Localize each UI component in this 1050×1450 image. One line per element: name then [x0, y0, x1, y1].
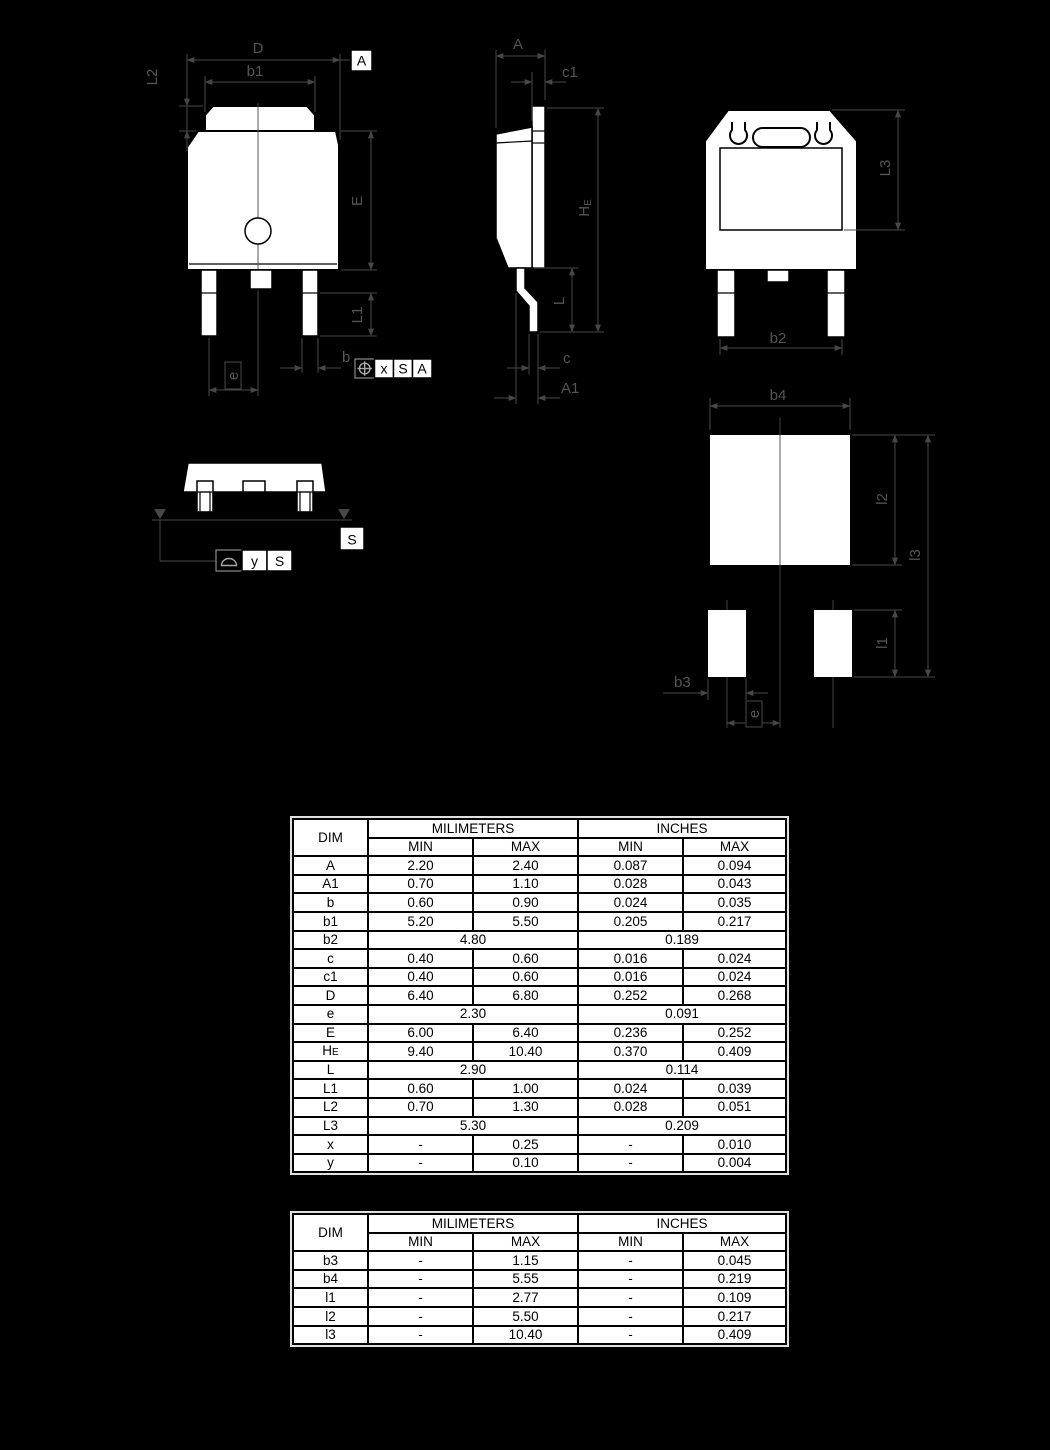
- table-cell: 5.50: [473, 912, 578, 931]
- col-header-max: MAX: [473, 1233, 578, 1252]
- lead-left-back: [717, 270, 735, 337]
- dim-cell: c1: [293, 968, 368, 987]
- table-row: b3-1.15-0.045: [293, 1251, 786, 1270]
- table-cell: 0.370: [578, 1042, 683, 1061]
- table-cell: 0.10: [473, 1154, 578, 1173]
- col-header-min: MIN: [578, 1233, 683, 1252]
- table-cell: 0.90: [473, 893, 578, 912]
- dim-cell: L2: [293, 1098, 368, 1117]
- dimension-table-package: DIMMILIMETERSINCHESMINMAXMINMAXA2.202.40…: [292, 818, 787, 1173]
- table-row: D6.406.800.2520.268: [293, 986, 786, 1005]
- dim-label-L1: L1: [349, 307, 366, 324]
- table-cell: 0.217: [683, 912, 786, 931]
- table-row: l2-5.50-0.217: [293, 1307, 786, 1326]
- table-cell: 0.087: [578, 856, 683, 875]
- table-cell: -: [368, 1307, 473, 1326]
- dim-cell: E: [293, 1024, 368, 1043]
- dim-cell: e: [293, 1005, 368, 1024]
- dim-cell: b4: [293, 1270, 368, 1289]
- table-row: b4-5.55-0.219: [293, 1270, 786, 1289]
- table-cell: 0.094: [683, 856, 786, 875]
- datum-a-label: A: [357, 53, 367, 69]
- table-cell: 0.268: [683, 986, 786, 1005]
- table-row: b0.600.900.0240.035: [293, 893, 786, 912]
- table-row: b24.800.189: [293, 931, 786, 950]
- table-cell: -: [578, 1270, 683, 1289]
- col-header-dim: DIM: [293, 1214, 368, 1251]
- package-outline-drawing: D A b1 L2 E L1 b e: [0, 0, 1050, 780]
- table-cell: 0.219: [683, 1270, 786, 1289]
- table-cell: 0.40: [368, 949, 473, 968]
- table-cell: -: [368, 1251, 473, 1270]
- table-cell: 0.114: [578, 1061, 786, 1080]
- table-row: A10.701.100.0280.043: [293, 875, 786, 894]
- table-cell: 0.016: [578, 968, 683, 987]
- table-cell: 0.60: [368, 1079, 473, 1098]
- dim-label-fp-l2: l2: [874, 493, 891, 505]
- table-cell: 0.024: [683, 968, 786, 987]
- table-cell: 0.028: [578, 875, 683, 894]
- table-cell: 0.024: [578, 893, 683, 912]
- table-cell: -: [368, 1326, 473, 1345]
- dim-cell: y: [293, 1154, 368, 1173]
- table-cell: 0.016: [578, 949, 683, 968]
- dim-label-b: b: [342, 349, 350, 366]
- table-row: y-0.10-0.004: [293, 1154, 786, 1173]
- table-cell: 0.024: [683, 949, 786, 968]
- dim-label-e: e: [225, 372, 242, 380]
- dim-label-A1: A1: [561, 380, 579, 397]
- position-tolerance-frame: x S A: [355, 359, 432, 378]
- pin1-mark: [245, 218, 271, 244]
- dim-label-b3: b3: [674, 674, 691, 691]
- table-row: L35.300.209: [293, 1117, 786, 1136]
- fcf-position-x: x: [381, 361, 388, 377]
- dim-cell: A1: [293, 875, 368, 894]
- notch-right: [815, 122, 832, 144]
- table-cell: 0.209: [578, 1117, 786, 1136]
- seating-plane-tolerance-frame: y S: [216, 550, 292, 571]
- table-cell: 10.40: [473, 1042, 578, 1061]
- dim-cell: b1: [293, 912, 368, 931]
- table-cell: 0.004: [683, 1154, 786, 1173]
- datasheet-page: { "colors": { "page_bg": "#000000", "lin…: [0, 0, 1050, 1450]
- table-row: A2.202.400.0870.094: [293, 856, 786, 875]
- col-header-inches: INCHES: [578, 1214, 786, 1233]
- table-row: x-0.25-0.010: [293, 1135, 786, 1154]
- table-row: c10.400.600.0160.024: [293, 968, 786, 987]
- table-cell: 0.409: [683, 1042, 786, 1061]
- dim-label-fp-e: e: [746, 710, 763, 718]
- table-cell: 0.109: [683, 1288, 786, 1307]
- table-cell: 9.40: [368, 1042, 473, 1061]
- table-cell: 0.028: [578, 1098, 683, 1117]
- dim-label-fp-l3: l3: [907, 549, 924, 561]
- dim-cell: l2: [293, 1307, 368, 1326]
- table-cell: -: [368, 1154, 473, 1173]
- dim-label-E: E: [349, 196, 366, 206]
- table-cell: 1.10: [473, 875, 578, 894]
- fcf-seating-s: S: [275, 553, 284, 569]
- table-cell: 4.80: [368, 931, 578, 950]
- table-cell: 0.70: [368, 875, 473, 894]
- dim-cell: b3: [293, 1251, 368, 1270]
- table-row: L20.701.300.0280.051: [293, 1098, 786, 1117]
- table-cell: 2.30: [368, 1005, 578, 1024]
- table-cell: -: [368, 1288, 473, 1307]
- table-cell: -: [578, 1154, 683, 1173]
- lead-left: [201, 270, 217, 336]
- dim-label-c: c: [563, 350, 571, 367]
- table-cell: -: [368, 1135, 473, 1154]
- table-cell: -: [578, 1251, 683, 1270]
- col-header-milimeters: MILIMETERS: [368, 1214, 578, 1233]
- col-header-min: MIN: [368, 838, 473, 857]
- stub-bottom: [243, 481, 265, 492]
- table-row: e2.300.091: [293, 1005, 786, 1024]
- col-header-min: MIN: [368, 1233, 473, 1252]
- dim-label-D: D: [253, 40, 264, 57]
- lead-pad-left: [708, 610, 746, 677]
- col-header-dim: DIM: [293, 819, 368, 856]
- table-cell: 0.252: [578, 986, 683, 1005]
- table-row: L10.601.000.0240.039: [293, 1079, 786, 1098]
- bottom-view: y S S: [152, 463, 364, 571]
- dim-label-b2: b2: [770, 330, 787, 347]
- table-cell: 0.091: [578, 1005, 786, 1024]
- col-header-inches: INCHES: [578, 819, 786, 838]
- dim-label-L: L: [551, 297, 568, 305]
- footprint-view: b4 l2 l3 l1 b3 e: [663, 387, 935, 728]
- table-cell: 6.80: [473, 986, 578, 1005]
- center-stub: [250, 270, 272, 289]
- table-cell: 2.40: [473, 856, 578, 875]
- tab-slot: [753, 128, 810, 147]
- dim-cell: A: [293, 856, 368, 875]
- table-row: L2.900.114: [293, 1061, 786, 1080]
- dimension-table-package-wrap: DIMMILIMETERSINCHESMINMAXMINMAXA2.202.40…: [290, 816, 789, 1175]
- lead-right-back: [827, 270, 845, 337]
- table-row: l1-2.77-0.109: [293, 1288, 786, 1307]
- fcf-position-s: S: [398, 361, 407, 377]
- dim-label-L3: L3: [877, 160, 894, 177]
- table-cell: 1.15: [473, 1251, 578, 1270]
- dimension-table-footprint-wrap: DIMMILIMETERSINCHESMINMAXMINMAXb3-1.15-0…: [290, 1211, 789, 1347]
- dim-cell: l3: [293, 1326, 368, 1345]
- dim-label-HE: HE: [576, 199, 594, 217]
- lead-right-bottom: [297, 481, 313, 512]
- table-row: b15.205.500.2050.217: [293, 912, 786, 931]
- table-cell: 0.043: [683, 875, 786, 894]
- dim-cell: x: [293, 1135, 368, 1154]
- dim-cell: l1: [293, 1288, 368, 1307]
- table-cell: 0.189: [578, 931, 786, 950]
- table-row: E6.006.400.2360.252: [293, 1024, 786, 1043]
- lead-pad-right: [814, 610, 852, 677]
- table-cell: 2.20: [368, 856, 473, 875]
- table-cell: -: [578, 1135, 683, 1154]
- center-stub-back: [767, 270, 789, 282]
- col-header-max: MAX: [683, 838, 786, 857]
- table-cell: 2.77: [473, 1288, 578, 1307]
- dim-cell: L3: [293, 1117, 368, 1136]
- table-cell: 6.00: [368, 1024, 473, 1043]
- table-cell: 0.25: [473, 1135, 578, 1154]
- table-cell: 5.30: [368, 1117, 578, 1136]
- table-cell: 6.40: [368, 986, 473, 1005]
- dim-cell: D: [293, 986, 368, 1005]
- side-view: A c1 HE L c A1: [494, 36, 604, 404]
- table-cell: 0.409: [683, 1326, 786, 1345]
- dim-label-b1: b1: [247, 63, 264, 80]
- seating-plane-arrow-right: [338, 509, 350, 519]
- table-cell: 6.40: [473, 1024, 578, 1043]
- table-cell: 1.00: [473, 1079, 578, 1098]
- dim-label-c1: c1: [562, 64, 578, 81]
- table-cell: 1.30: [473, 1098, 578, 1117]
- dim-cell: L1: [293, 1079, 368, 1098]
- dim-label-L2: L2: [144, 69, 161, 86]
- tab-front: [205, 106, 315, 131]
- table-cell: 0.236: [578, 1024, 683, 1043]
- table-cell: -: [368, 1270, 473, 1289]
- table-cell: -: [578, 1326, 683, 1345]
- lead-left-bottom: [197, 481, 213, 512]
- table-row: c0.400.600.0160.024: [293, 949, 786, 968]
- datum-s-label: S: [347, 532, 356, 548]
- table-cell: 0.60: [368, 893, 473, 912]
- col-header-max: MAX: [683, 1233, 786, 1252]
- table-cell: 0.70: [368, 1098, 473, 1117]
- dim-label-b4: b4: [770, 387, 787, 404]
- back-view: L3 b2: [705, 110, 905, 355]
- table-cell: 0.252: [683, 1024, 786, 1043]
- fcf-seating-y: y: [251, 553, 258, 569]
- dim-cell: c: [293, 949, 368, 968]
- col-header-min: MIN: [578, 838, 683, 857]
- notch-left: [730, 122, 747, 144]
- table-cell: 0.035: [683, 893, 786, 912]
- table-cell: 0.60: [473, 968, 578, 987]
- lead-right: [302, 270, 318, 336]
- fcf-position-a: A: [417, 361, 427, 377]
- table-row: l3-10.40-0.409: [293, 1326, 786, 1345]
- table-cell: 0.40: [368, 968, 473, 987]
- table-cell: 5.20: [368, 912, 473, 931]
- table-cell: 0.205: [578, 912, 683, 931]
- table-cell: 5.50: [473, 1307, 578, 1326]
- dimension-table-footprint: DIMMILIMETERSINCHESMINMAXMINMAXb3-1.15-0…: [292, 1213, 787, 1345]
- col-header-milimeters: MILIMETERS: [368, 819, 578, 838]
- table-cell: 0.60: [473, 949, 578, 968]
- seating-plane-arrow-left: [154, 509, 166, 519]
- dim-label-A: A: [513, 36, 523, 53]
- table-cell: 0.010: [683, 1135, 786, 1154]
- dim-cell: b: [293, 893, 368, 912]
- table-row: HE9.4010.400.3700.409: [293, 1042, 786, 1061]
- table-cell: 0.051: [683, 1098, 786, 1117]
- col-header-max: MAX: [473, 838, 578, 857]
- tab-side: [532, 106, 545, 268]
- table-cell: 0.217: [683, 1307, 786, 1326]
- table-cell: 0.045: [683, 1251, 786, 1270]
- table-cell: -: [578, 1307, 683, 1326]
- body-side: [496, 127, 532, 268]
- dim-cell: L: [293, 1061, 368, 1080]
- table-cell: 0.039: [683, 1079, 786, 1098]
- lead-side: [516, 268, 538, 332]
- table-cell: 0.024: [578, 1079, 683, 1098]
- table-cell: 10.40: [473, 1326, 578, 1345]
- table-cell: 5.55: [473, 1270, 578, 1289]
- body-front: [187, 131, 339, 270]
- front-view: D A b1 L2 E L1 b e: [144, 40, 432, 396]
- table-cell: -: [578, 1288, 683, 1307]
- dim-cell: HE: [293, 1042, 368, 1061]
- table-cell: 2.90: [368, 1061, 578, 1080]
- dim-cell: b2: [293, 931, 368, 950]
- dim-label-fp-l1: l1: [874, 637, 891, 649]
